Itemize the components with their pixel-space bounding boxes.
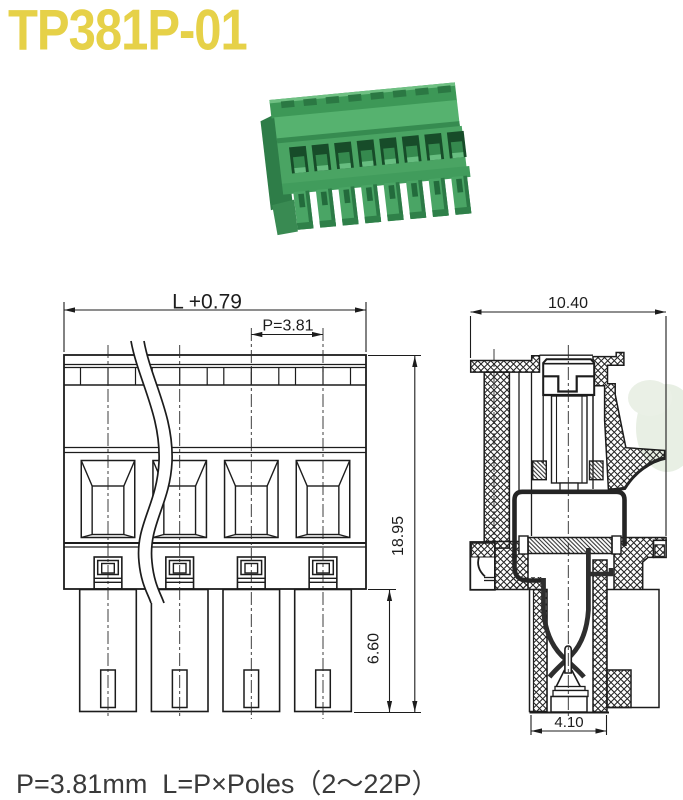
svg-text:4.10: 4.10 xyxy=(554,714,583,731)
svg-text:P=3.81mm L=P×Poles（2～22P）: P=3.81mm L=P×Poles（2～22P） xyxy=(16,769,438,799)
svg-text:18.95: 18.95 xyxy=(390,516,407,556)
svg-text:L +0.79: L +0.79 xyxy=(172,291,242,314)
svg-text:10.40: 10.40 xyxy=(548,295,588,312)
svg-text:TP381P-01: TP381P-01 xyxy=(8,0,247,63)
svg-text:P=3.81: P=3.81 xyxy=(262,318,313,335)
svg-text:6.60: 6.60 xyxy=(366,633,383,664)
